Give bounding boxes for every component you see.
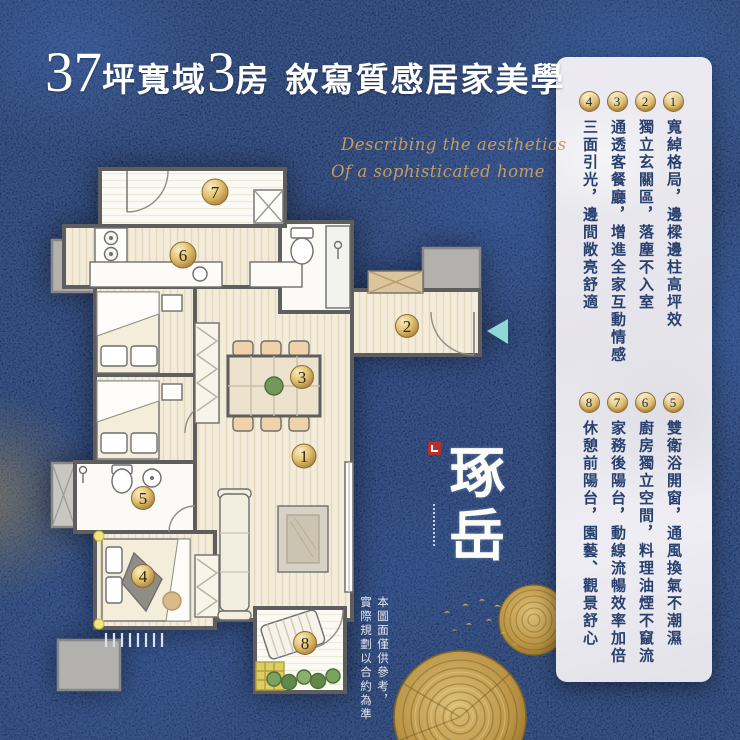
plan-marker-4: 4 [132,565,155,588]
svg-text:4: 4 [139,567,148,586]
svg-text:8: 8 [301,634,310,653]
plan-marker-5: 5 [132,487,155,510]
english-script-tagline: Describing the aesthetics Of a sophistic… [331,131,567,185]
svg-text:2: 2 [403,317,412,336]
logo-microtext [433,504,435,546]
svg-text:7: 7 [211,183,220,202]
feature-column-2: 2 獨立玄關區，落塵不入室 [632,91,658,312]
feature-column-3: 3 通透客餐廳，增進全家互動情感 [604,91,630,364]
feature-badge-2: 2 [635,91,656,112]
feature-badge-6: 6 [635,392,656,413]
logo-seal-icon [428,442,441,455]
svg-text:1: 1 [300,447,309,466]
feature-badge-1: 1 [663,91,684,112]
feature-panel: 1 寬綽格局，邊樑邊柱高坪效 2 獨立玄關區，落塵不入室 3 通透客餐廳，增進全… [556,57,712,682]
disclaimer-note: 本圖面僅供參考， 實際規劃以合約為準 [356,596,390,740]
plan-marker-7: 7 [202,179,228,205]
page-title: 37 坪寬域 3 房 敘寫質感居家美學 [45,44,566,101]
floor-plan: 12345678 [50,165,520,695]
plan-marker-3: 3 [291,366,314,389]
brand-logo: 琢岳 [424,438,510,588]
feature-text-6: 廚房獨立空間，料理油煙不竄流 [632,420,658,665]
logo-name: 琢岳 [440,443,502,569]
plan-marker-6: 6 [170,242,196,268]
title-tagline: 敘寫質感居家美學 [286,65,566,98]
svg-text:6: 6 [179,246,188,265]
svg-text:5: 5 [139,489,148,508]
feature-badge-8: 8 [579,392,600,413]
disclaimer-line-2: 實際規劃以合約為準 [356,596,373,740]
poster: 12345678 37 坪寬域 3 房 敘寫質感居家美學 Describing … [0,0,740,740]
feature-badge-3: 3 [607,91,628,112]
feature-text-8: 休憩前陽台，園藝、觀景舒心 [576,420,602,648]
feature-column-5: 5 雙衛浴開窗，通風換氣不潮濕 [660,392,686,648]
feature-text-5: 雙衛浴開窗，通風換氣不潮濕 [660,420,686,648]
plan-marker-8: 8 [294,632,317,655]
title-text-suffix: 房 [236,65,271,98]
feature-text-3: 通透客餐廳，增進全家互動情感 [604,119,630,364]
feature-column-7: 7 家務後陽台，動線流暢效率加倍 [604,392,630,665]
title-number-37: 37 [45,44,102,101]
title-number-3: 3 [207,44,236,101]
plan-marker-1: 1 [292,444,316,468]
script-line-2: Of a sophisticated home [331,158,567,185]
feature-badge-7: 7 [607,392,628,413]
feature-column-6: 6 廚房獨立空間，料理油煙不竄流 [632,392,658,665]
feature-text-7: 家務後陽台，動線流暢效率加倍 [604,420,630,665]
entry-arrow [487,319,508,344]
svg-text:3: 3 [298,368,307,387]
feature-column-4: 4 三面引光，邊間敞亮舒適 [576,91,602,312]
title-text-mid: 坪寬域 [102,65,207,98]
feature-badge-4: 4 [579,91,600,112]
feature-badge-5: 5 [663,392,684,413]
disclaimer-line-1: 本圖面僅供參考， [373,596,390,740]
feature-text-4: 三面引光，邊間敞亮舒適 [576,119,602,312]
plan-marker-2: 2 [396,315,419,338]
script-line-1: Describing the aesthetics [331,131,567,158]
feature-text-1: 寬綽格局，邊樑邊柱高坪效 [660,119,686,329]
feature-text-2: 獨立玄關區，落塵不入室 [632,119,658,312]
feature-column-8: 8 休憩前陽台，園藝、觀景舒心 [576,392,602,648]
feature-column-1: 1 寬綽格局，邊樑邊柱高坪效 [660,91,686,329]
